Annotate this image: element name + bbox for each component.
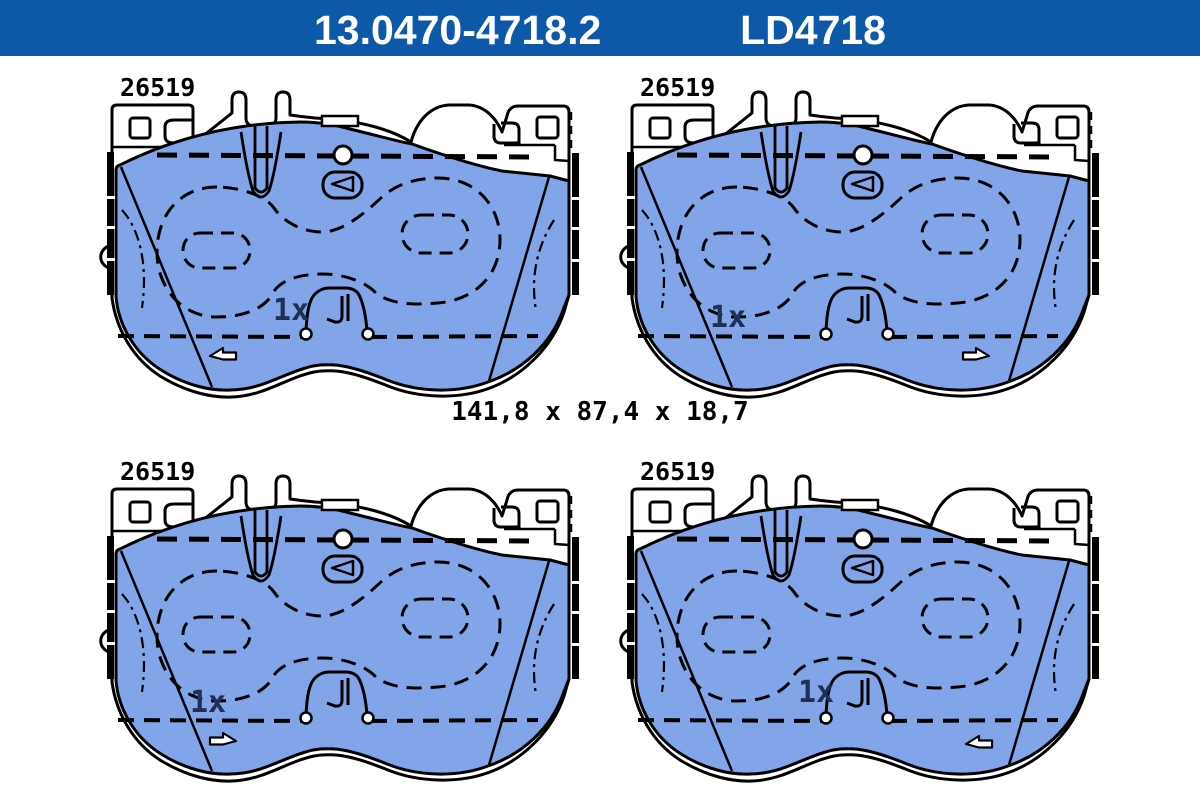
pad-label-bottom-right: 26519 xyxy=(640,457,715,486)
pad-diagram-top-left xyxy=(101,92,580,397)
dimension-label: 141,8 x 87,4 x 18,7 xyxy=(451,397,748,427)
pad-label-top-right: 26519 xyxy=(640,73,715,102)
technical-drawing-area: 26519 26519 26519 26519 1x 1x 1x 1x 141,… xyxy=(0,56,1200,805)
quantity-label-bottom-right: 1x xyxy=(798,675,834,710)
brake-pad-drawing-canvas: 26519 26519 26519 26519 1x 1x 1x 1x 141,… xyxy=(0,56,1200,800)
part-number-text: 13.0470-4718.2 xyxy=(314,7,601,53)
datasheet-page: { "header": { "part_number": "13.0470-47… xyxy=(0,0,1200,800)
quantity-label-top-right: 1x xyxy=(710,300,746,335)
pad-diagram-top-right xyxy=(621,92,1100,397)
variant-code-text: LD4718 xyxy=(740,7,886,53)
title-bar: 13.0470-4718.2 LD4718 xyxy=(0,0,1200,56)
pad-label-top-left: 26519 xyxy=(120,73,195,102)
pad-diagram-bottom-left xyxy=(101,476,580,781)
quantity-label-bottom-left: 1x xyxy=(190,685,226,720)
pad-diagram-bottom-right xyxy=(621,476,1100,781)
pad-label-bottom-left: 26519 xyxy=(120,457,195,486)
quantity-label-top-left: 1x xyxy=(273,293,309,328)
